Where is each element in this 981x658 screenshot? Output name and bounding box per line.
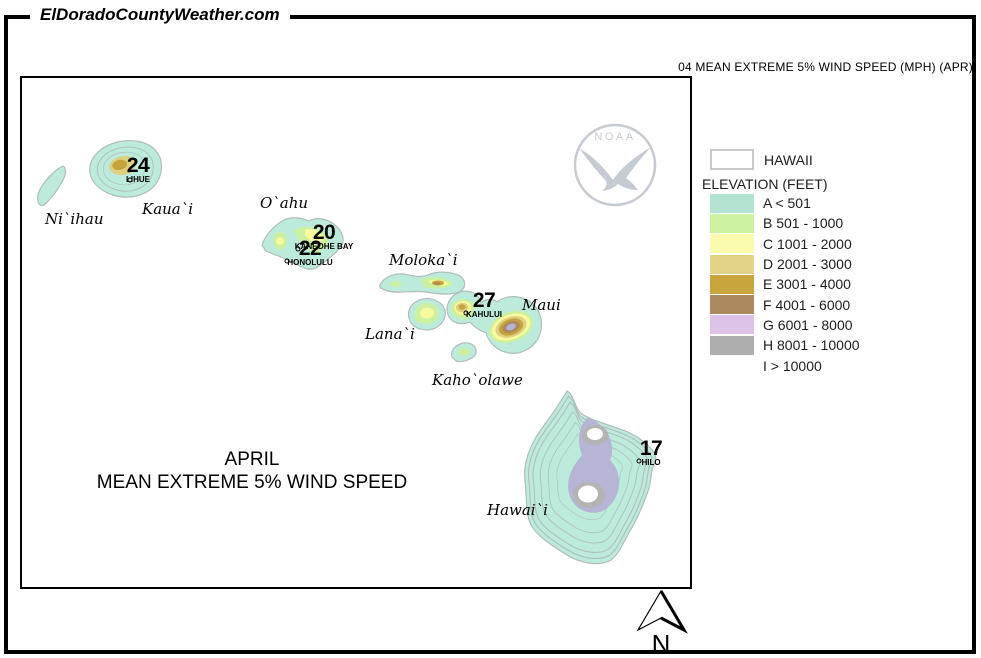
north-arrow-icon (638, 591, 684, 630)
legend-swatch (710, 234, 754, 253)
legend-label: D 2001 - 3000 (763, 256, 852, 272)
station-name: KAHULUI (466, 310, 502, 319)
noaa-logo-text: NOAA (594, 131, 635, 143)
legend-swatch (710, 356, 754, 375)
legend-swatch (710, 255, 754, 274)
station-name: HILO (640, 458, 662, 467)
station-value: 27 (466, 292, 502, 310)
island-label-niihau: Ni`ihau (45, 211, 103, 227)
north-arrow: N (628, 582, 696, 658)
elevation-legend: A < 501 B 501 - 1000 C 1001 - 2000 D 200… (710, 193, 860, 376)
legend-swatch (710, 315, 754, 334)
island-hawaii-shape (525, 391, 656, 564)
site-title: ElDoradoCountyWeather.com (30, 4, 290, 25)
station-value: 22 (287, 240, 332, 258)
legend-label: B 501 - 1000 (763, 215, 843, 231)
map-code-title: 04 MEAN EXTREME 5% WIND SPEED (MPH) (APR… (678, 60, 973, 74)
legend-swatch (710, 336, 754, 355)
legend-title: ELEVATION (FEET) (702, 176, 828, 192)
map-caption: APRIL MEAN EXTREME 5% WIND SPEED (97, 448, 407, 494)
hawaii-elevation-map: NOAA (22, 78, 690, 587)
region-label: HAWAII (764, 152, 813, 168)
island-molokai-shape (380, 272, 465, 294)
legend-row: D 2001 - 3000 (710, 254, 860, 274)
island-niihau-shape (38, 166, 66, 205)
island-label-kahoolawe: Kaho`olawe (432, 372, 523, 388)
island-label-kauai: Kaua`i (142, 201, 193, 217)
legend-swatch (710, 194, 754, 213)
station-name: HONOLULU (287, 258, 332, 267)
north-label: N (652, 629, 671, 658)
legend-row: B 501 - 1000 (710, 213, 860, 233)
weather-map-page: ElDoradoCountyWeather.com 04 MEAN EXTREM… (0, 0, 981, 658)
legend-row: F 4001 - 6000 (710, 294, 860, 314)
noaa-logo: NOAA (575, 125, 655, 205)
legend-swatch (710, 275, 754, 294)
island-kahoolawe-shape (452, 343, 477, 362)
legend-row: G 6001 - 8000 (710, 315, 860, 335)
station-name: LIHUE (126, 175, 150, 184)
caption-month: APRIL (97, 448, 407, 471)
station-kahului: 27 KAHULUI (466, 292, 502, 319)
legend-row: I > 10000 (710, 355, 860, 375)
legend-row: A < 501 (710, 193, 860, 213)
legend-label: E 3001 - 4000 (763, 276, 851, 292)
island-label-hawaii: Hawai`i (487, 502, 548, 518)
station-hilo: 17 HILO (640, 440, 662, 467)
legend-label: G 6001 - 8000 (763, 317, 853, 333)
station-value: 17 (640, 440, 662, 458)
noaa-bird-icon (579, 147, 651, 191)
map-frame: NOAA Ni`ihau Kaua`i O`ahu Moloka`i Lana`… (20, 76, 692, 589)
caption-metric: MEAN EXTREME 5% WIND SPEED (97, 471, 407, 494)
legend-region: HAWAII (710, 149, 813, 170)
legend-row: C 1001 - 2000 (710, 234, 860, 254)
island-label-molokai: Moloka`i (389, 252, 458, 268)
legend-label: C 1001 - 2000 (763, 236, 852, 252)
legend-row: E 3001 - 4000 (710, 274, 860, 294)
legend-label: A < 501 (763, 195, 811, 211)
island-label-maui: Maui (522, 297, 561, 313)
region-outline-swatch (710, 149, 754, 170)
station-lihue: 24 LIHUE (126, 157, 150, 184)
station-honolulu: 22 HONOLULU (287, 240, 332, 267)
station-value: 24 (126, 157, 150, 175)
legend-row: H 8001 - 10000 (710, 335, 860, 355)
legend-label: H 8001 - 10000 (763, 337, 860, 353)
legend-swatch (710, 214, 754, 233)
island-label-oahu: O`ahu (260, 195, 308, 211)
island-label-lanai: Lana`i (365, 326, 415, 342)
legend-swatch (710, 295, 754, 314)
legend-label: I > 10000 (763, 358, 822, 374)
legend-label: F 4001 - 6000 (763, 297, 850, 313)
